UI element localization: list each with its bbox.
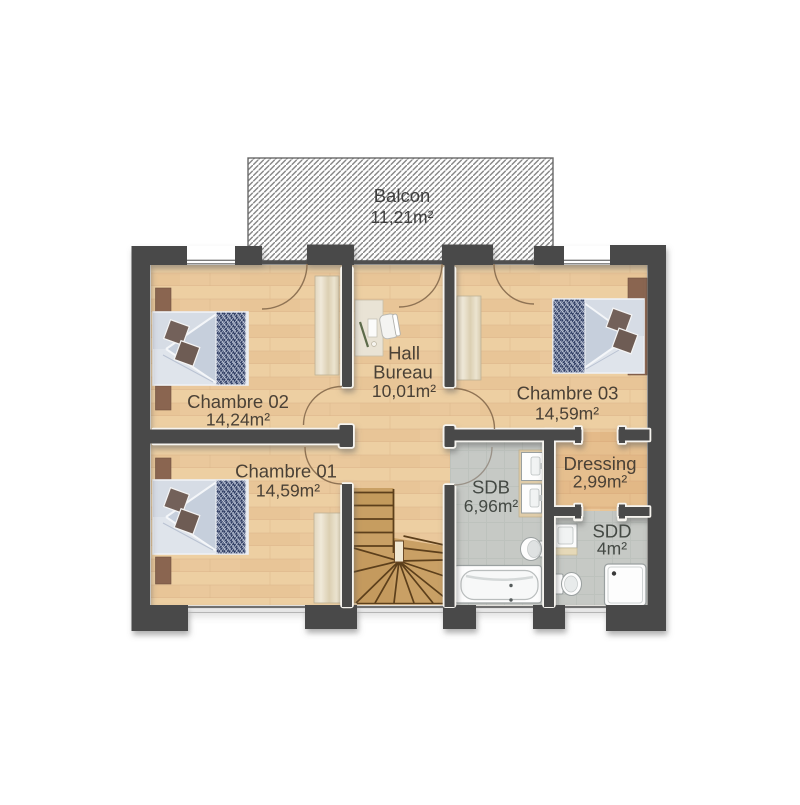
svg-text:2,99m²: 2,99m² [573, 472, 628, 492]
svg-text:6,96m²: 6,96m² [464, 496, 519, 516]
svg-text:14,59m²: 14,59m² [535, 404, 599, 424]
svg-text:4m²: 4m² [597, 539, 627, 559]
svg-text:Balcon: Balcon [374, 185, 431, 206]
svg-text:Hall: Hall [388, 343, 420, 364]
svg-text:10,01m²: 10,01m² [372, 381, 436, 401]
svg-text:14,24m²: 14,24m² [206, 410, 270, 430]
svg-text:Chambre 01: Chambre 01 [235, 461, 337, 482]
svg-text:Chambre 03: Chambre 03 [517, 383, 619, 404]
svg-text:Bureau: Bureau [373, 362, 433, 383]
svg-text:14,59m²: 14,59m² [256, 481, 320, 501]
svg-text:SDB: SDB [472, 477, 510, 498]
svg-text:11,21m²: 11,21m² [371, 207, 434, 227]
